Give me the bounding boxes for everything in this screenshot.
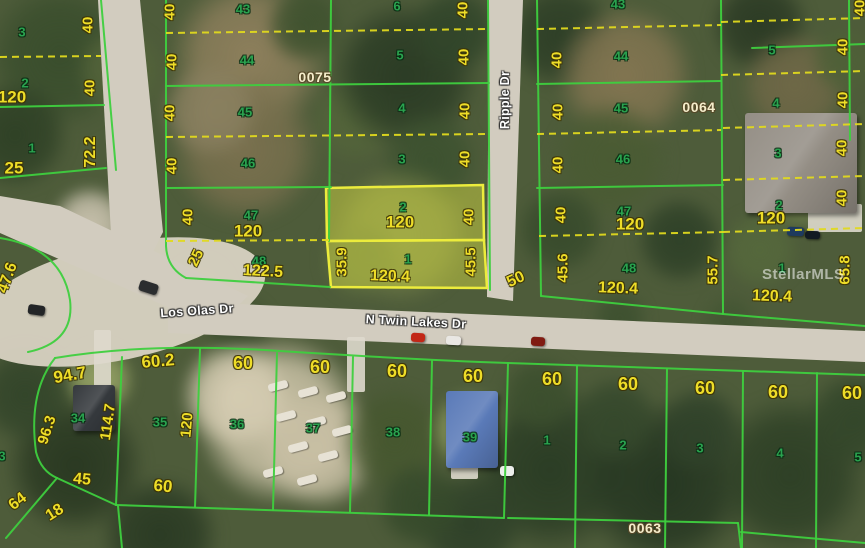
dimension-label: 55.7: [706, 255, 721, 284]
dimension-label: 40: [165, 54, 180, 71]
dimension-label: 40: [462, 209, 477, 226]
dimension-label: 40: [83, 80, 98, 97]
dimension-label: 40: [551, 157, 566, 174]
dimension-label: 40: [853, 0, 865, 16]
lot-number-label: 5: [768, 44, 775, 57]
lot-number-label: 2: [619, 439, 626, 452]
dimension-label: 72.2: [83, 136, 99, 167]
lot-number-label: 4: [772, 97, 779, 110]
dimension-label: 120.4: [370, 268, 411, 285]
dimension-label: 40: [550, 52, 565, 69]
block-id-label: 0064: [682, 100, 715, 114]
labels-layer: 3214344454647486543214344454647485432134…: [0, 0, 865, 548]
dimension-label: 96.3: [35, 414, 58, 446]
dimension-label: 40: [554, 207, 569, 224]
lot-number-label: 45: [238, 106, 252, 119]
dimension-label: 60: [618, 375, 638, 393]
dimension-label: 40: [163, 105, 178, 122]
lot-number-label: 46: [616, 153, 630, 166]
lot-number-label: 39: [463, 431, 477, 444]
lot-number-label: 4: [398, 102, 405, 115]
lot-number-label: 1: [28, 142, 35, 155]
lot-number-label: 43: [611, 0, 625, 11]
dimension-label: 94.7: [52, 364, 88, 386]
lot-number-label: 6: [393, 0, 400, 13]
dimension-label: 35.9: [335, 247, 350, 276]
dimension-label: 40: [835, 190, 850, 207]
lot-number-label: 35: [153, 416, 167, 429]
dimension-label: 64: [6, 490, 30, 514]
dimension-label: 40: [836, 92, 851, 109]
dimension-label: 120.4: [752, 288, 793, 305]
dimension-label: 120: [178, 412, 195, 438]
dimension-label: 60: [153, 477, 173, 496]
lot-number-label: 3: [0, 450, 6, 463]
dimension-label: 25: [5, 160, 24, 177]
dimension-label: 40: [181, 209, 196, 226]
dimension-label: 120: [234, 223, 262, 240]
dimension-label: 40: [165, 158, 180, 175]
dimension-label: 60: [695, 379, 715, 397]
dimension-label: 60: [542, 370, 562, 388]
dimension-label: 40: [458, 103, 473, 120]
block-id-label: 0063: [628, 521, 661, 535]
dimension-label: 60.2: [141, 351, 175, 371]
lot-number-label: 3: [398, 153, 405, 166]
dimension-label: 45.6: [556, 253, 571, 282]
dimension-label: 45: [72, 471, 91, 488]
dimension-label: 60: [310, 358, 330, 376]
street-label: N Twin Lakes Dr: [365, 313, 466, 331]
lot-number-label: 3: [774, 147, 781, 160]
dimension-label: 25: [186, 247, 207, 268]
dimension-label: 45.5: [464, 247, 479, 276]
dimension-label: 50: [505, 269, 528, 291]
dimension-label: 40: [456, 2, 471, 19]
dimension-label: 47.6: [0, 261, 21, 296]
dimension-label: 60: [463, 367, 483, 385]
block-id-label: 0075: [298, 70, 331, 84]
dimension-label: 40: [836, 39, 851, 56]
lot-number-label: 48: [622, 262, 636, 275]
lot-number-label: 43: [236, 3, 250, 16]
lot-number-label: 47: [244, 209, 258, 222]
lot-number-label: 4: [776, 447, 783, 460]
dimension-label: 120: [386, 214, 414, 231]
lot-number-label: 3: [696, 442, 703, 455]
dimension-label: 120.4: [598, 280, 639, 297]
dimension-label: 40: [551, 104, 566, 121]
dimension-label: 114.7: [98, 403, 118, 441]
dimension-label: 60: [768, 383, 788, 401]
dimension-label: 40: [458, 151, 473, 168]
dimension-label: 40: [81, 17, 96, 34]
lot-number-label: 36: [230, 418, 244, 431]
plat-map-canvas[interactable]: 3214344454647486543214344454647485432134…: [0, 0, 865, 548]
lot-number-label: 44: [240, 54, 254, 67]
lot-number-label: 5: [854, 451, 861, 464]
dimension-label: 60: [842, 384, 862, 402]
lot-number-label: 38: [386, 426, 400, 439]
dimension-label: 60: [387, 362, 407, 380]
lot-number-label: 1: [404, 253, 411, 266]
watermark: StellarMLS: [762, 266, 845, 283]
lot-number-label: 46: [241, 157, 255, 170]
lot-number-label: 37: [306, 422, 320, 435]
lot-number-label: 1: [543, 434, 550, 447]
street-label: Los Olas Dr: [160, 302, 234, 320]
dimension-label: 122.5: [243, 263, 284, 281]
lot-number-label: 3: [18, 26, 25, 39]
lot-number-label: 44: [614, 50, 628, 63]
dimension-label: 120: [616, 216, 644, 233]
lot-number-label: 45: [614, 102, 628, 115]
dimension-label: 40: [163, 4, 178, 21]
dimension-label: 60: [233, 354, 253, 372]
lot-number-label: 34: [71, 412, 85, 425]
dimension-label: 40: [457, 49, 472, 66]
dimension-label: 40: [835, 140, 850, 157]
lot-number-label: 5: [396, 49, 403, 62]
dimension-label: 120: [757, 210, 785, 227]
dimension-label: 120: [0, 89, 26, 106]
street-label: Ripple Dr: [499, 71, 512, 129]
dimension-label: 18: [43, 502, 67, 525]
